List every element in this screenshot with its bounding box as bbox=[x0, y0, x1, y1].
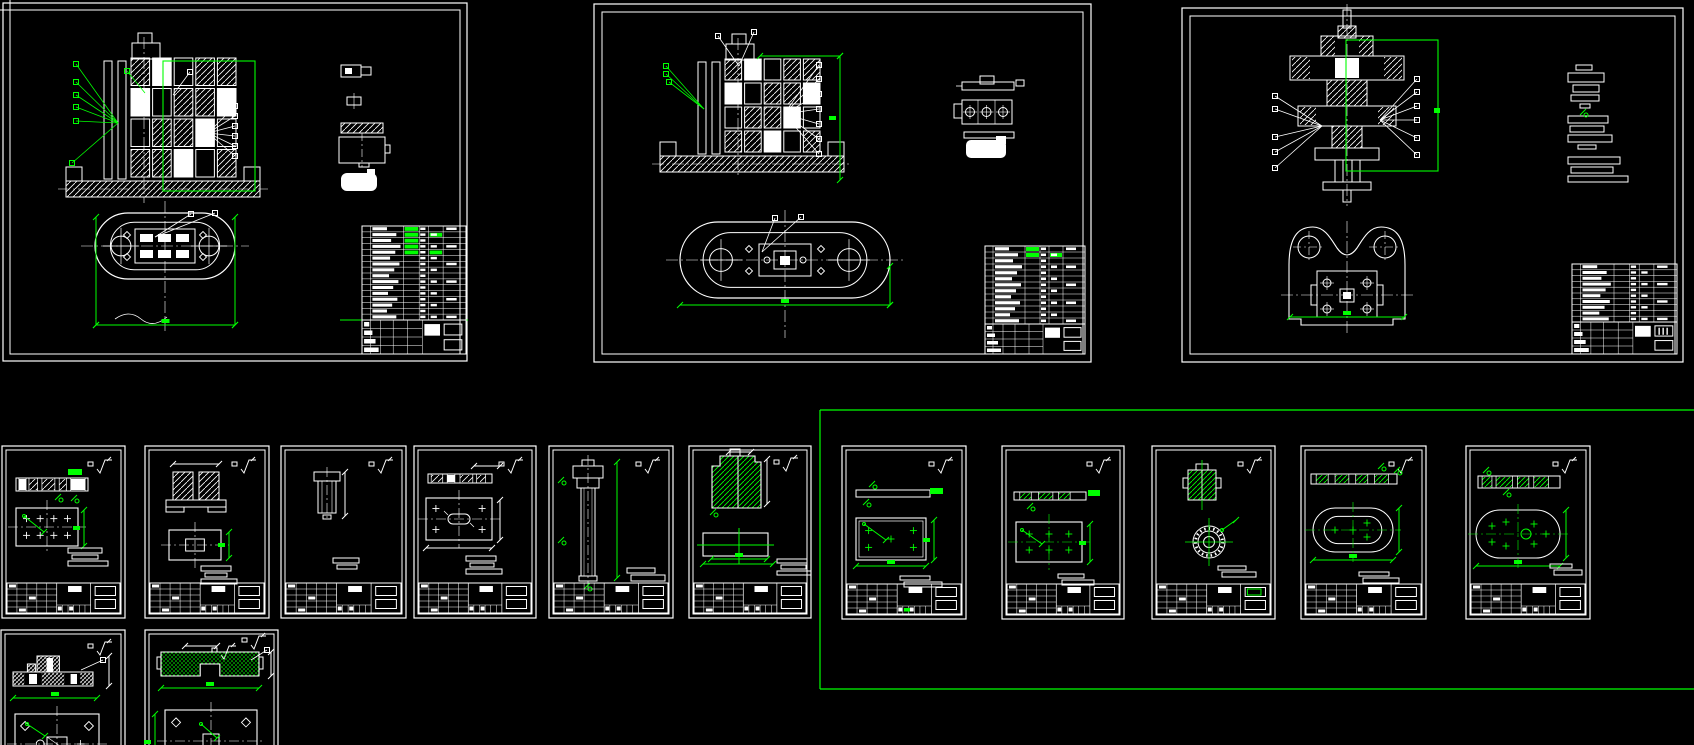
view-gdim bbox=[55, 494, 79, 503]
view-oplan bbox=[81, 201, 249, 331]
sheet-border bbox=[1, 630, 125, 745]
cad-canvas[interactable] bbox=[0, 0, 1694, 745]
sheet-border bbox=[281, 446, 406, 618]
sheet-part-drawing-07[interactable] bbox=[842, 446, 966, 619]
view-stack bbox=[1359, 572, 1399, 583]
view-bolt bbox=[573, 455, 603, 588]
view-gdim bbox=[923, 517, 937, 563]
sheet-part-drawing-05[interactable] bbox=[549, 446, 673, 618]
view-tbs bbox=[7, 583, 120, 613]
view-stack bbox=[777, 559, 811, 575]
view-hbar bbox=[16, 478, 88, 491]
view-gdim bbox=[1079, 521, 1093, 565]
view-tbl bbox=[985, 324, 1085, 354]
view-hbar bbox=[856, 490, 930, 497]
view-wdim bbox=[182, 643, 220, 649]
view-hbar bbox=[1311, 474, 1397, 484]
view-rough bbox=[242, 633, 266, 649]
view-grect bbox=[1088, 490, 1100, 496]
view-grect bbox=[1434, 108, 1440, 113]
sheet-part-drawing-02[interactable] bbox=[145, 446, 269, 618]
view-tbs bbox=[1157, 584, 1270, 614]
view-tbs bbox=[554, 583, 668, 613]
view-gdim bbox=[26, 723, 49, 740]
view-gdim bbox=[158, 682, 262, 691]
view-wdim bbox=[764, 456, 770, 507]
view-pplan bbox=[1008, 514, 1090, 570]
view-gdim bbox=[1027, 503, 1035, 511]
sheet-border bbox=[594, 4, 1091, 362]
sheet-border bbox=[549, 446, 673, 618]
view-rough bbox=[369, 457, 393, 473]
sheet-assembly-drawing-1[interactable] bbox=[0, 0, 468, 361]
view-parts bbox=[954, 76, 1024, 158]
sheet-border bbox=[1002, 446, 1124, 619]
view-tbs bbox=[1471, 584, 1585, 614]
view-bom bbox=[985, 246, 1085, 324]
view-dplan bbox=[1281, 221, 1413, 333]
view-wdim bbox=[471, 463, 503, 469]
view-gdim bbox=[73, 507, 87, 549]
view-xstack bbox=[1568, 65, 1628, 182]
sheet-border bbox=[2, 446, 125, 618]
view-oplans bbox=[1468, 504, 1568, 568]
view-rough bbox=[499, 457, 523, 473]
view-gdim bbox=[863, 523, 890, 544]
view-pplan bbox=[418, 490, 500, 548]
view-rough bbox=[1389, 457, 1413, 473]
view-gdim bbox=[1021, 529, 1046, 548]
sheet-border bbox=[414, 446, 536, 618]
view-gdim bbox=[232, 214, 238, 328]
view-wdim bbox=[268, 649, 274, 679]
view-stack bbox=[68, 548, 108, 566]
view-rough bbox=[929, 457, 953, 473]
view-ssec bbox=[13, 656, 93, 686]
view-gdim bbox=[853, 560, 929, 569]
view-rough bbox=[1087, 457, 1111, 473]
view-rough bbox=[1553, 457, 1577, 473]
view-gdim bbox=[144, 711, 158, 745]
view-gdim bbox=[218, 529, 232, 561]
sheet-part-drawing-11[interactable] bbox=[1466, 446, 1590, 619]
view-stack bbox=[466, 556, 502, 574]
view-wdim bbox=[170, 461, 222, 467]
view-pplan bbox=[157, 702, 265, 745]
view-pplan bbox=[7, 706, 107, 745]
view-tbs bbox=[150, 583, 264, 613]
view-rough bbox=[1238, 457, 1262, 473]
view-gdim bbox=[558, 477, 592, 591]
view-gpart bbox=[1183, 460, 1221, 510]
view-tbs bbox=[1306, 584, 1421, 614]
sheet-border bbox=[842, 446, 966, 619]
view-gblock bbox=[712, 449, 761, 508]
view-stack bbox=[201, 566, 237, 584]
view-leads bbox=[155, 211, 218, 238]
sheet-assembly-drawing-2[interactable] bbox=[594, 4, 1091, 362]
view-tbl bbox=[1572, 322, 1677, 354]
view-gdim bbox=[1378, 463, 1402, 475]
sheet-part-drawing-06[interactable] bbox=[689, 446, 811, 618]
view-rough bbox=[774, 455, 798, 471]
view-hbar bbox=[1478, 476, 1560, 488]
sheet-part-drawing-01[interactable] bbox=[2, 446, 125, 618]
sheet-part-drawing-04[interactable] bbox=[414, 446, 536, 618]
sheet-part-drawing-12[interactable] bbox=[1, 630, 125, 745]
view-oplans bbox=[1305, 502, 1401, 562]
sheet-part-drawing-03[interactable] bbox=[281, 446, 406, 618]
view-tbs bbox=[847, 584, 961, 614]
sheet-part-drawing-10[interactable] bbox=[1301, 446, 1426, 619]
view-hbar bbox=[428, 474, 492, 483]
view-tbl bbox=[362, 320, 466, 354]
view-tbs bbox=[419, 583, 531, 613]
sheet-part-drawing-09[interactable] bbox=[1152, 446, 1275, 619]
view-rough bbox=[232, 457, 256, 473]
view-tbs bbox=[694, 583, 806, 613]
sheet-border bbox=[1182, 8, 1683, 362]
view-rough bbox=[88, 457, 112, 473]
view-gdim bbox=[1221, 517, 1240, 532]
view-oplan bbox=[666, 210, 904, 338]
view-stack bbox=[1058, 574, 1094, 585]
sheet-assembly-drawing-3[interactable] bbox=[1182, 4, 1683, 362]
view-pplan bbox=[856, 518, 926, 560]
view-stack bbox=[627, 568, 665, 581]
view-wdim bbox=[106, 653, 112, 689]
view-bom bbox=[340, 226, 468, 320]
view-grect bbox=[930, 488, 943, 494]
view-bom bbox=[1572, 264, 1677, 322]
view-leads bbox=[762, 215, 804, 253]
view-ring bbox=[1185, 518, 1233, 566]
view-parts bbox=[339, 65, 390, 191]
view-gdim bbox=[757, 53, 843, 59]
view-gdim bbox=[614, 459, 620, 581]
view-hblocks bbox=[166, 472, 226, 512]
view-grect bbox=[68, 469, 82, 475]
view-stack bbox=[1218, 566, 1256, 577]
view-vsec bbox=[1290, 4, 1404, 206]
view-wdim bbox=[497, 497, 503, 543]
cad-model-space bbox=[0, 0, 1694, 745]
selection-rectangle bbox=[820, 410, 1694, 689]
view-rough bbox=[636, 457, 660, 473]
view-gdim bbox=[1287, 311, 1407, 320]
view-tbs bbox=[286, 583, 401, 613]
view-cyl bbox=[314, 467, 340, 520]
view-leads bbox=[81, 658, 106, 671]
sheet-border bbox=[1301, 446, 1426, 619]
view-stack bbox=[333, 558, 359, 569]
view-cmark bbox=[0, 0, 15, 15]
sheet-part-drawing-08[interactable] bbox=[1002, 446, 1124, 619]
view-tbs bbox=[1007, 584, 1119, 614]
view-gdim bbox=[10, 692, 100, 701]
view-wdim bbox=[342, 469, 348, 519]
view-notchbar bbox=[157, 652, 263, 676]
view-hbar bbox=[1014, 492, 1086, 500]
view-gdim bbox=[863, 481, 877, 507]
sheet-part-drawing-13[interactable] bbox=[144, 630, 278, 745]
view-gdim bbox=[887, 263, 893, 308]
view-gdim bbox=[710, 509, 718, 517]
view-stack bbox=[900, 576, 942, 587]
view-gdim bbox=[93, 319, 238, 328]
view-rough bbox=[88, 639, 112, 655]
